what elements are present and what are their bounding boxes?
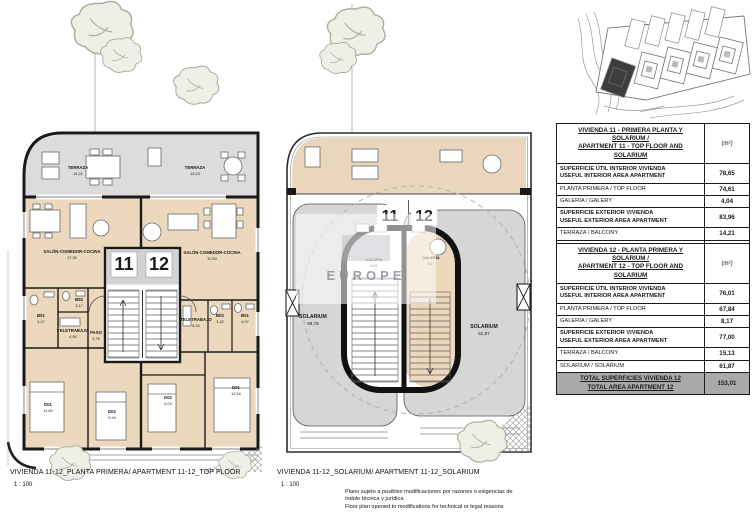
row-value: 14,21 [704,228,749,239]
room-area: 9,49 [108,416,115,420]
room-area: 14,21 [73,172,83,176]
table-title-en: APARTMENT 11 - TOP FLOOR AND SOLARIUM [561,143,700,159]
table-total-row: TOTAL SUPERFICIES VIVIENDA 12 TOTAL AREA… [557,373,749,394]
room-label: TERRAZA [68,165,89,170]
room-label: B01 [241,313,249,318]
plan-solarium-drawing: 11 12 GALERÍA 4,04 GALERÍA 8,17 SOLARIUM… [286,133,531,462]
row-label-en: USEFUL INTERIOR AREA APARTMENT [560,293,701,300]
room-label: SOLARIUM [470,324,498,330]
row-value: 74,61 [704,184,749,195]
room-label: D01 [44,402,52,407]
table-row: SUPERFICIE EXTERIOR VIVIENDAUSEFUL EXTER… [557,328,749,348]
room-label: SOLARIUM [299,314,327,320]
row-label-es: SUPERFICIE EXTERIOR VIVIENDA [560,210,701,217]
room-label: B01 [37,313,45,318]
row-label-es: PLANTA PRIMERA / TOP FLOOR [560,186,701,193]
room-label: B02 [75,297,83,302]
table-row: TERRAZA / BALCONY 15,13 [557,348,749,360]
unit-header: (m²) [704,244,749,283]
table-row: SUPERFICIE EXTERIOR VIVIENDAUSEFUL EXTER… [557,208,749,228]
table-row: SOLARIUM / SOLARIUM 61,87 [557,361,749,373]
total-label-en: TOTAL AREA APARTMENT 12 [559,384,702,392]
row-value: 78,65 [704,164,749,183]
stair-core [344,224,458,390]
row-label-en: USEFUL EXTERIOR AREA APARTMENT [560,218,701,225]
room-label: D02 [164,395,172,400]
table-title-es: VIVIENDA 12 - PLANTA PRIMERA Y SOLARIUM … [561,247,700,263]
room-label: TELETRABAJO [180,317,212,322]
room-label: SALÓN-COMEDOR-COCINA [183,250,240,255]
row-value: 15,13 [704,348,749,359]
row-label-es: TERRAZA / BALCONY [560,230,701,237]
terrace-floor [26,135,258,196]
table-header: VIVIENDA 12 - PLANTA PRIMERA Y SOLARIUM … [557,244,749,284]
room-area: 4,04 [371,264,378,268]
row-label-es: TERRAZA / BALCONY [560,350,701,357]
room-area: 30,50 [207,257,217,261]
room-area: 3,42 [216,320,223,324]
table-row: GALERÍA / GALERY 4,04 [557,196,749,208]
disclaimer-en: Floor plan opened to modifications for t… [345,504,521,511]
disclaimer: Plano sujeto a posibles modificaciones p… [345,489,521,511]
room-area: 3,76 [92,337,99,341]
row-label-en: USEFUL EXTERIOR AREA APARTMENT [560,338,701,345]
room-area: 4,50 [69,335,76,339]
table-title-es: VIVIENDA 11 - PRIMERA PLANTA Y SOLARIUM … [561,127,700,143]
table-title-en: APARTMENT 12 - TOP FLOOR AND SOLARIUM [561,263,700,279]
table-header: VIVIENDA 11 - PRIMERA PLANTA Y SOLARIUM … [557,124,749,164]
site-plan [578,7,750,118]
plan-sheet: 11 12 TERRAZA 14,21 TERRAZA 15,13 SALÓN-… [0,0,756,528]
row-value: 77,00 [704,328,749,347]
room-area: 9,04 [164,402,171,406]
row-value: 4,04 [704,196,749,207]
row-label-es: GALERÍA / GALERY [560,318,701,325]
table-row: PLANTA PRIMERA / TOP FLOOR 74,61 [557,184,749,196]
room-label: SALÓN-COMEDOR-COCINA [43,249,100,254]
unit-number-12: 12 [415,208,433,225]
plan-solarium-caption: VIVIENDA 11-12_SOLARIUM/ APARTMENT 11-12… [277,469,480,476]
room-label: D02 [108,409,116,414]
stair-core [89,248,196,362]
row-label-es: GALERÍA / GALERY [560,198,701,205]
row-value: 67,84 [704,304,749,315]
room-area: 61,87 [478,331,490,336]
row-value: 8,17 [704,316,749,327]
plan-solarium-scale: 1 : 100 [281,482,299,488]
room-label: TERRAZA [185,165,206,170]
table-row: PLANTA PRIMERA / TOP FLOOR 67,84 [557,304,749,316]
room-area: 15,13 [190,172,200,176]
unit-number-12: 12 [149,254,169,274]
room-label: TELETRABAJO [57,328,89,333]
area-table-apartment-12: VIVIENDA 12 - PLANTA PRIMERA Y SOLARIUM … [556,243,750,395]
row-label-es: SUPERFICIE ÚTIL INTERIOR VIVIENDA [560,286,701,293]
row-label-es: SUPERFICIE EXTERIOR VIVIENDA [560,330,701,337]
table-row: SUPERFICIE ÚTIL INTERIOR VIVIENDAUSEFUL … [557,284,749,304]
table-row: SUPERFICIE ÚTIL INTERIOR VIVIENDAUSEFUL … [557,164,749,184]
plan-top-floor-drawing: 11 12 TERRAZA 14,21 TERRAZA 15,13 SALÓN-… [8,133,262,480]
room-area: 69,75 [307,321,319,326]
room-area: 11,69 [43,409,52,413]
room-label: B02 [216,313,224,318]
row-value: 76,01 [704,284,749,303]
room-label: PASO [90,330,103,335]
room-label: D01 [232,385,240,390]
room-area: 3,17 [75,304,82,308]
table-row: GALERÍA / GALERY 8,17 [557,316,749,328]
room-area: 3,47 [37,320,44,324]
room-label: GALERÍA [365,257,383,262]
row-value: 61,87 [704,361,749,372]
row-label-en: USEFUL INTERIOR AREA APARTMENT [560,173,701,180]
room-area: 5,34 [192,324,199,328]
stairs-flight [146,290,177,358]
total-value: 153,01 [704,373,749,394]
unit-number-11: 11 [114,254,133,274]
row-label-es: SUPERFICIE ÚTIL INTERIOR VIVIENDA [560,166,701,173]
room-area: 27,36 [67,256,77,260]
row-label-es: SOLARIUM / SOLARIUM [560,363,701,370]
table-row: TERRAZA / BALCONY 14,21 [557,228,749,240]
total-label-es: TOTAL SUPERFICIES VIVIENDA 12 [559,375,702,383]
unit-number-11: 11 [382,208,399,225]
row-value: 83,96 [704,208,749,227]
room-area: 12,94 [231,392,241,396]
plan-top-floor-scale: 1 : 100 [14,482,32,488]
disclaimer-es: Plano sujeto a posibles modificaciones p… [345,489,521,504]
room-area: 8,17 [428,262,435,266]
plan-top-floor-caption: VIVIENDA 11-12_PLANTA PRIMERA/ APARTMENT… [10,469,241,476]
room-area: 4,07 [241,320,248,324]
unit-header: (m²) [704,124,749,163]
tree-icon [174,66,219,104]
row-label-es: PLANTA PRIMERA / TOP FLOOR [560,306,701,313]
room-label: GALERÍA [422,255,440,260]
